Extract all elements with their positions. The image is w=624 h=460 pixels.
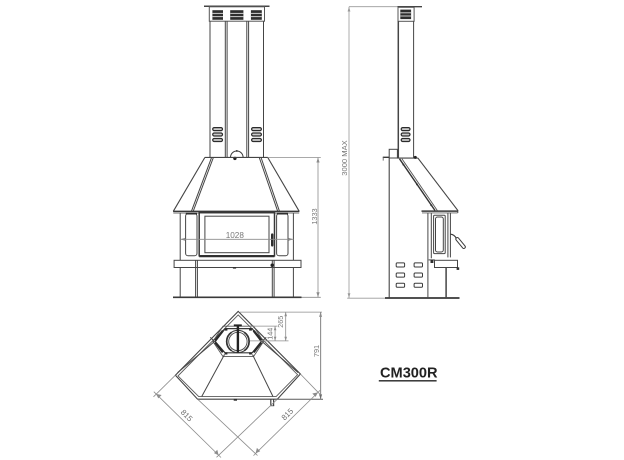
svg-text:144: 144 <box>265 328 274 340</box>
svg-text:3000 MAX: 3000 MAX <box>340 140 349 175</box>
svg-text:1028: 1028 <box>226 231 245 240</box>
svg-text:CM300R: CM300R <box>380 365 438 381</box>
svg-text:791: 791 <box>312 345 321 357</box>
svg-text:265: 265 <box>276 316 285 328</box>
svg-text:1333: 1333 <box>310 208 319 224</box>
